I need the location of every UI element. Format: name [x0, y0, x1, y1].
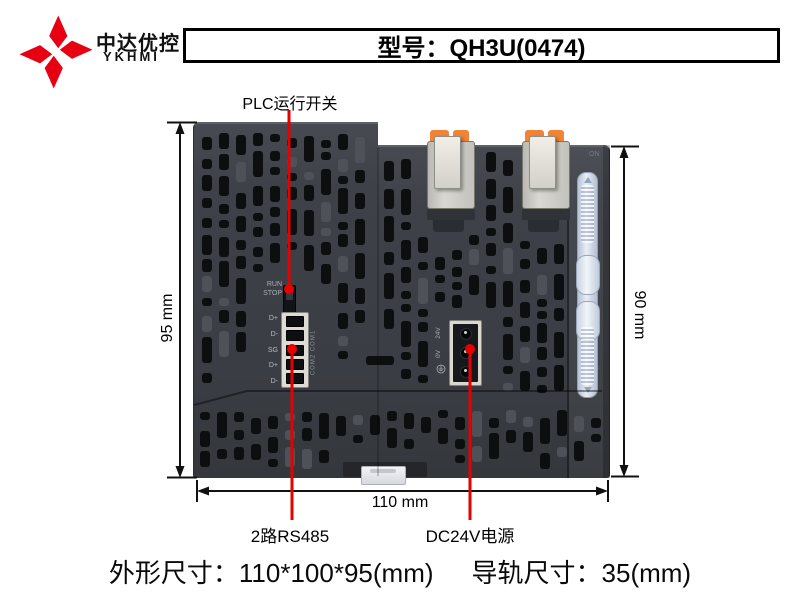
vent-slot — [554, 244, 564, 264]
vent-slot — [268, 437, 278, 453]
vent-slot — [202, 175, 212, 191]
vent-slot — [253, 213, 263, 221]
horizontal-vent-slot — [366, 356, 394, 365]
vent-slot — [321, 264, 331, 284]
vent-slot — [486, 152, 496, 172]
vent-slot — [384, 161, 394, 181]
vent-slot — [202, 198, 212, 208]
vent-slot — [355, 288, 365, 304]
vent-slot — [202, 276, 212, 292]
vent-slot — [355, 137, 365, 163]
vent-slot — [472, 411, 482, 437]
vent-slot — [418, 278, 428, 304]
vent-slot — [336, 416, 346, 436]
rs485-pin — [286, 330, 304, 341]
latch-handle — [434, 136, 461, 189]
vent-slot — [404, 439, 414, 449]
vent-slot — [435, 257, 445, 270]
vent-slot — [503, 160, 513, 176]
vent-slot — [219, 261, 229, 287]
latch-bracket — [522, 209, 570, 220]
vent-slot — [219, 237, 229, 257]
vent-slot — [435, 292, 445, 302]
vent-slot — [200, 412, 210, 420]
rail-lock-slider — [577, 172, 598, 398]
vent-slot — [202, 235, 212, 255]
vent-slot — [486, 228, 496, 236]
vent-slot — [520, 326, 530, 342]
vent-slot — [537, 367, 547, 377]
vent-slot — [520, 371, 530, 391]
vent-slot — [418, 375, 428, 383]
io-terminal-latch-2 — [522, 130, 570, 232]
vent-slot — [472, 446, 482, 462]
vent-slot — [401, 240, 411, 260]
vent-slot — [401, 159, 411, 179]
slider-ribs — [581, 327, 594, 385]
vent-slot — [285, 413, 295, 421]
vent-slot — [353, 415, 363, 425]
vent-slot — [236, 162, 246, 182]
triangle-up-icon — [584, 177, 592, 183]
brand-name-english: YKHMI — [103, 49, 160, 64]
vent-slot — [236, 240, 246, 250]
vent-slot — [321, 140, 331, 148]
vent-slot — [355, 310, 365, 323]
vent-slot — [486, 282, 496, 308]
vent-slot — [202, 218, 212, 228]
vent-slot — [251, 418, 261, 434]
vent-slot — [285, 430, 295, 440]
vent-slot — [270, 223, 280, 236]
vent-slot — [503, 317, 513, 327]
vent-slot — [338, 351, 348, 359]
vent-slot — [304, 245, 314, 271]
power-callout: DC24V电源 — [420, 522, 520, 547]
vent-slot — [486, 179, 496, 199]
vent-slot — [503, 366, 513, 374]
rs485-pin — [286, 359, 304, 370]
vent-slot — [523, 417, 533, 427]
vent-slot — [219, 220, 229, 228]
vent-slot — [387, 428, 397, 448]
vent-slot — [469, 235, 479, 245]
vent-slot — [455, 439, 465, 449]
power-24v-label: 24V — [435, 323, 443, 343]
vent-slot — [321, 169, 331, 195]
stop-label: STOP — [258, 290, 282, 299]
vent-slot — [418, 262, 428, 270]
vent-slot — [270, 167, 280, 175]
vent-slot — [503, 383, 513, 391]
vent-slot — [304, 172, 314, 180]
vent-slot — [554, 332, 564, 358]
ground-icon — [436, 364, 446, 374]
vent-slot — [418, 309, 428, 317]
vent-slot — [387, 411, 397, 421]
vent-slot — [236, 256, 246, 269]
vent-slot — [287, 138, 297, 148]
latch-handle — [529, 136, 556, 189]
vent-slot — [384, 189, 394, 209]
dimension-height-right: 90 mm — [630, 275, 648, 355]
vent-slot — [520, 302, 530, 318]
brand-logo-icon — [18, 12, 94, 92]
vent-slot — [418, 341, 428, 367]
slider-grip — [576, 255, 600, 295]
slider-ribs — [581, 185, 594, 243]
pin-label: D+ — [258, 362, 278, 369]
vent-slot — [506, 430, 516, 443]
latch-bracket-lip — [433, 220, 464, 232]
outline-size-text: 外形尺寸：110*100*95(mm) — [109, 553, 434, 590]
vent-slot — [338, 176, 348, 184]
vent-slot — [219, 310, 229, 323]
vent-slot — [338, 188, 348, 214]
vent-slot — [202, 316, 212, 332]
vent-slot — [452, 295, 462, 308]
vent-slot — [319, 413, 329, 439]
vent-slot — [384, 273, 394, 299]
vent-slot — [557, 447, 567, 457]
vent-slot — [469, 275, 479, 295]
vent-slot — [503, 334, 513, 360]
vent-slot — [355, 193, 365, 209]
vent-slot — [370, 415, 380, 435]
vent-slot — [236, 135, 246, 155]
vent-slot — [251, 444, 261, 460]
vent-slot — [338, 336, 348, 346]
vent-slot — [253, 151, 263, 177]
vent-slot — [268, 459, 278, 467]
power-connector — [449, 320, 482, 386]
rs485-pin — [286, 373, 304, 384]
vent-slot — [401, 369, 411, 379]
vent-slot — [438, 428, 448, 444]
vent-slot — [217, 412, 227, 438]
vent-slot — [435, 275, 445, 283]
vent-slot — [219, 133, 229, 149]
vent-slot — [202, 159, 212, 169]
plc-switch-callout: PLC运行开关 — [229, 90, 351, 114]
vent-slot — [384, 216, 394, 242]
vent-slot — [253, 133, 263, 146]
din-clip — [361, 466, 406, 485]
vent-slot — [503, 187, 513, 213]
vent-slot — [202, 137, 212, 150]
vent-slot — [202, 373, 212, 383]
vent-slot — [202, 337, 212, 363]
vent-slot — [270, 151, 280, 161]
vent-slot — [401, 321, 411, 347]
vent-slot — [253, 186, 263, 206]
vent-slot — [285, 447, 295, 467]
vent-slot — [236, 216, 246, 232]
vent-slot — [268, 416, 278, 429]
io-terminal-latch-1 — [427, 130, 475, 232]
vent-slot — [503, 223, 513, 243]
vent-slot — [404, 413, 414, 429]
model-title: 型号：QH3U(0474) — [183, 28, 780, 63]
vent-slot — [537, 311, 547, 319]
com-ports-label: COM2 COM1 — [311, 328, 320, 378]
vent-slot — [355, 170, 365, 183]
triangle-down-icon — [584, 387, 592, 393]
vent-slot — [234, 447, 244, 460]
vent-slot — [554, 274, 564, 300]
vent-slot — [469, 249, 479, 265]
pin-label: D- — [258, 378, 278, 385]
vent-slot — [287, 157, 297, 167]
vent-slot — [455, 455, 465, 463]
vent-slot — [338, 222, 348, 230]
rs485-pin-labels: D+ D- SG D+ D- — [258, 315, 278, 385]
latch-bracket — [427, 209, 475, 220]
vent-slot — [486, 266, 496, 274]
vent-slot — [401, 189, 411, 215]
vent-slot — [353, 435, 363, 443]
vent-slot — [287, 209, 297, 235]
rail-size-text: 导轨尺寸：35(mm) — [472, 553, 692, 590]
vent-slot — [302, 428, 312, 441]
vent-slot — [236, 311, 246, 327]
vent-slot — [418, 322, 428, 332]
power-pin — [460, 328, 472, 340]
vent-slot — [554, 365, 564, 391]
vent-slot — [302, 412, 312, 422]
vent-slot — [338, 313, 348, 329]
rs485-pin — [286, 345, 304, 356]
rs485-connector — [281, 312, 309, 388]
vent-slot — [591, 434, 601, 442]
vent-slot — [234, 430, 244, 440]
vent-slot — [338, 256, 348, 272]
vent-slot — [520, 241, 530, 249]
vent-slot — [253, 227, 263, 237]
vent-slot — [236, 193, 246, 209]
vent-slot — [321, 228, 331, 236]
vent-slot — [506, 410, 516, 423]
vent-slot — [270, 134, 280, 142]
vent-slot — [219, 331, 229, 357]
vent-slot — [489, 433, 499, 459]
rail-lock-on-label: ON — [589, 151, 600, 158]
vent-slot — [455, 417, 465, 430]
vent-slot — [338, 234, 348, 247]
vent-slot — [287, 173, 297, 181]
power-pin — [460, 347, 472, 359]
vent-slot — [338, 159, 348, 172]
vent-slot — [338, 134, 348, 150]
vent-slot — [236, 278, 246, 304]
vent-slot — [421, 417, 431, 433]
vent-slot — [304, 210, 314, 236]
vent-slot — [253, 264, 263, 272]
switch-knob — [286, 288, 293, 300]
dimension-width-bottom: 110 mm — [357, 494, 443, 512]
pin-label: D- — [258, 331, 278, 338]
vent-slot — [401, 291, 411, 299]
pin-label: SG — [258, 347, 278, 354]
power-0v-label: 0V — [435, 344, 443, 364]
vent-slot — [253, 247, 263, 257]
vent-slot — [304, 185, 314, 201]
vent-slot — [321, 242, 331, 255]
vent-slot — [520, 259, 530, 269]
vent-slot — [401, 222, 411, 230]
vent-slot — [219, 154, 229, 170]
latch-bracket-lip — [528, 220, 559, 232]
pin-label: D+ — [258, 315, 278, 322]
vent-slot — [200, 451, 210, 467]
vent-slot — [537, 347, 547, 360]
vent-slot — [236, 332, 246, 352]
vent-slot — [302, 449, 312, 469]
vent-slot — [452, 267, 462, 277]
run-stop-labels: RUN STOP — [258, 281, 282, 299]
vent-slot — [287, 242, 297, 250]
vent-slot — [438, 410, 448, 418]
page: 中达优控 YKHMI 型号：QH3U(0474) RUN STOP D+ D- … — [0, 0, 800, 600]
vent-slot — [287, 187, 297, 200]
vent-slot — [384, 252, 394, 265]
vent-slot — [520, 347, 530, 363]
vent-slot — [202, 298, 212, 306]
vent-slot — [540, 453, 550, 469]
run-label: RUN — [258, 281, 282, 290]
vent-slot — [401, 304, 411, 312]
vent-slot — [489, 418, 499, 428]
vent-slot — [355, 219, 365, 245]
rs485-pin — [286, 316, 304, 327]
vent-slot — [355, 253, 365, 279]
vent-slot — [219, 176, 229, 196]
vent-slot — [217, 449, 227, 459]
vent-slot — [574, 416, 584, 432]
power-connector-inner — [453, 324, 478, 382]
vent-slot — [401, 352, 411, 360]
vent-slot — [270, 207, 280, 217]
vent-slot — [503, 281, 513, 307]
vent-slot — [537, 299, 547, 307]
vent-slot — [554, 308, 564, 321]
vent-slot — [321, 202, 331, 222]
vent-slot — [537, 385, 547, 393]
vent-slot — [540, 418, 550, 444]
vent-slot — [219, 298, 229, 306]
vent-slot — [418, 237, 428, 253]
vent-slot — [574, 441, 584, 461]
vent-slot — [202, 259, 212, 272]
vent-slot — [452, 250, 462, 260]
vent-slot — [234, 412, 244, 422]
footer-dimensions: 外形尺寸：110*100*95(mm) 导轨尺寸：35(mm) — [0, 553, 800, 590]
vent-slot — [401, 267, 411, 283]
vent-slot — [219, 204, 229, 214]
vent-slot — [557, 410, 567, 436]
vent-slot — [321, 152, 331, 160]
vent-slot — [537, 248, 547, 264]
vent-slot — [523, 432, 533, 452]
vent-slot — [338, 283, 348, 303]
vent-slot — [384, 309, 394, 329]
vent-slot — [520, 280, 530, 293]
vent-slot — [270, 186, 280, 202]
vent-slot — [537, 323, 547, 343]
vent-slot — [537, 275, 547, 295]
vent-slot — [319, 450, 329, 463]
vent-slot — [591, 418, 601, 428]
vent-slot — [486, 205, 496, 221]
device-right-edge — [603, 145, 610, 478]
dimension-height-left: 95 mm — [159, 278, 177, 358]
rs485-callout: 2路RS485 — [241, 522, 339, 547]
vent-slot — [200, 431, 210, 447]
vent-slot — [270, 243, 280, 263]
vent-slot — [503, 248, 513, 274]
vent-slot — [486, 243, 496, 256]
vent-slot — [304, 136, 314, 162]
vent-slot — [452, 282, 462, 290]
power-pin — [460, 366, 472, 378]
